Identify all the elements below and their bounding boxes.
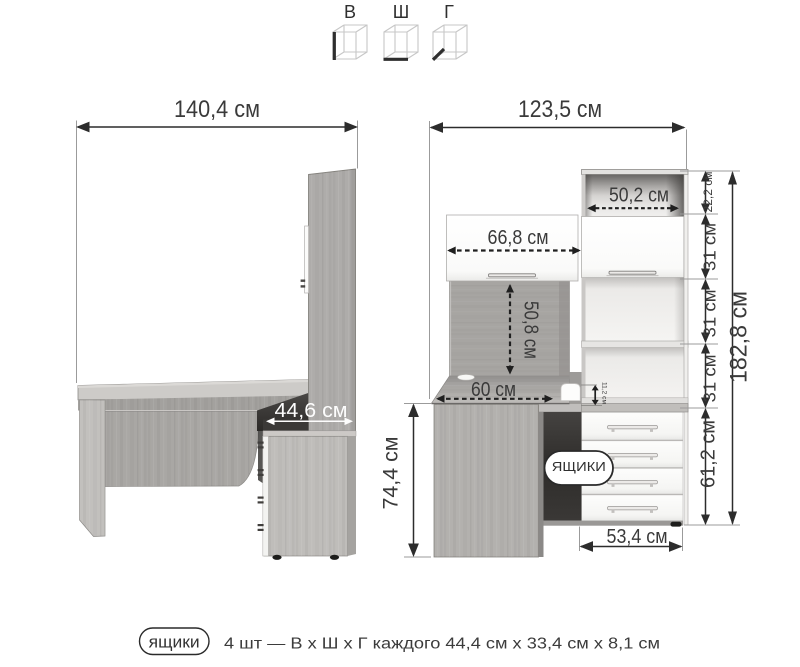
svg-text:4 шт — В х Ш х Г каждого 44,4: 4 шт — В х Ш х Г каждого 44,4 см х 33,4 …: [224, 636, 660, 653]
svg-text:В: В: [344, 2, 356, 22]
svg-text:66,8 см: 66,8 см: [488, 227, 549, 249]
svg-text:50,2 см: 50,2 см: [609, 185, 669, 207]
svg-text:11,2 см: 11,2 см: [601, 382, 607, 404]
svg-text:22,2 см: 22,2 см: [701, 172, 715, 213]
svg-text:60 см: 60 см: [471, 379, 516, 401]
svg-text:ящики: ящики: [149, 634, 200, 652]
svg-text:31 см: 31 см: [700, 355, 720, 403]
svg-text:123,5 см: 123,5 см: [518, 96, 602, 123]
svg-text:53,4 см: 53,4 см: [607, 526, 668, 548]
svg-text:140,4 см: 140,4 см: [174, 96, 260, 123]
svg-text:ЯЩИКИ: ЯЩИКИ: [552, 460, 606, 474]
svg-text:44,6 см: 44,6 см: [275, 400, 348, 422]
svg-text:Ш: Ш: [393, 2, 410, 22]
svg-text:31 см: 31 см: [700, 290, 720, 338]
svg-text:182,8 см: 182,8 см: [726, 291, 753, 383]
svg-text:74,4 см: 74,4 см: [380, 437, 403, 510]
svg-text:31 см: 31 см: [700, 223, 720, 271]
svg-text:Г: Г: [444, 2, 454, 22]
svg-text:61,2 см: 61,2 см: [698, 420, 720, 488]
svg-text:50,8 см: 50,8 см: [520, 301, 542, 359]
